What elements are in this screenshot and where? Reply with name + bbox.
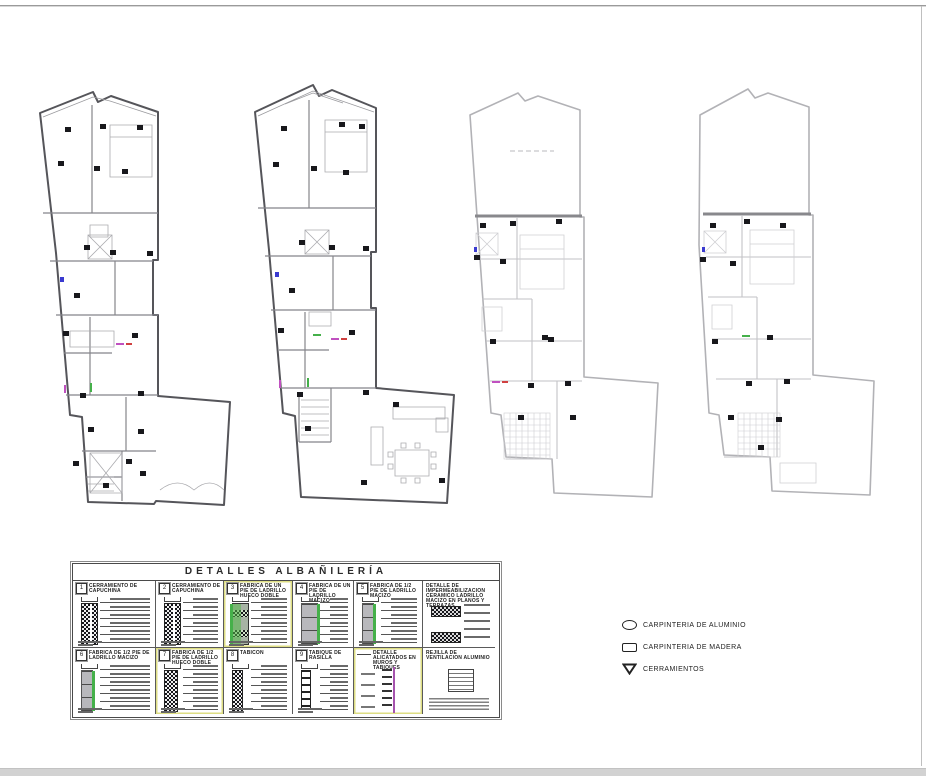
- detail-cell-8: 8 TABICON: [224, 648, 293, 714]
- sheet-right-border: [921, 6, 922, 766]
- cell-number: 8: [227, 650, 238, 661]
- legend-label: CERRAMIENTOS: [643, 666, 704, 673]
- detail-cell-5: 5 FABRICA DE 1/2 PIE DE LADRILLO MACIZO: [354, 581, 423, 648]
- green-overlay: [233, 604, 241, 644]
- wall-section-diagram: [426, 663, 493, 713]
- drawing-sheet: { "details_table": { "title": "DETALLES …: [0, 0, 926, 776]
- window-accent-magenta: [64, 343, 124, 393]
- cell-number: 4: [296, 583, 307, 594]
- window-accent-blue: [60, 277, 64, 282]
- cell-number: 6: [76, 650, 87, 661]
- wall-section-diagram: [159, 663, 221, 713]
- wall-section-diagram: [227, 596, 290, 646]
- annotation-text: [330, 598, 348, 642]
- tile-ticks: [382, 669, 392, 711]
- floor-plan-2: [243, 82, 458, 512]
- legend-item-madera: CARPINTERIA DE MADERA: [622, 636, 752, 658]
- ellipse-icon: [622, 620, 637, 630]
- legend-item-cerramientos: CERRAMIENTOS: [622, 658, 752, 680]
- spec-note: [229, 641, 253, 643]
- wall-section-diagram: [357, 596, 420, 646]
- floor-plan-1: [30, 85, 235, 510]
- interior-walls: [478, 217, 582, 459]
- plan-outline: [470, 93, 658, 497]
- annotation-text: [193, 665, 218, 709]
- window-accent-green: [742, 335, 750, 337]
- annotation-text: [110, 598, 150, 642]
- stairs-grid: [738, 413, 780, 457]
- interior-walls: [258, 100, 376, 442]
- ventilation-grille-icon: [448, 669, 474, 692]
- furniture: [476, 233, 564, 331]
- cell-number: 9: [296, 650, 307, 661]
- wall-bar: [232, 603, 249, 645]
- table-title: DETALLES ALBAÑILERÍA: [73, 564, 499, 581]
- legend: CARPINTERIA DE ALUMINIO CARPINTERIA DE M…: [622, 614, 752, 680]
- cell-number: 3: [227, 583, 238, 594]
- cell-number: 1: [76, 583, 87, 594]
- detail-cell-1: 1 CERRAMIENTO DE CAPUCHINA: [73, 581, 156, 648]
- horizontal-wall-bar: [431, 606, 461, 617]
- rect-icon: [622, 643, 637, 652]
- wall-section-diagram: [357, 663, 420, 713]
- note-text-block: [429, 698, 489, 711]
- plan-outline: [40, 92, 230, 505]
- window-accent-blue: [275, 272, 279, 277]
- wall-bar: [81, 603, 98, 645]
- plan-outline: [255, 85, 454, 503]
- window-accent-blue: [702, 247, 705, 252]
- detail-cell-7: 7 FABRICA DE 1/2 PIE DE LADRILLO HUECO D…: [156, 648, 224, 714]
- cell-number: 2: [159, 583, 170, 594]
- furniture: [301, 120, 448, 483]
- details-table: DETALLES ALBAÑILERÍA 1 CERRAMIENTO DE CA…: [72, 563, 500, 718]
- legend-item-aluminio: CARPINTERIA DE ALUMINIO: [622, 614, 752, 636]
- detail-cell-impermeabilizacion: DETALLE DE IMPERMEABILIZACION CERAMICO L…: [423, 581, 495, 648]
- window-accent-red: [502, 381, 508, 383]
- cell-label: CERRAMIENTO DE CAPUCHINA: [89, 583, 153, 594]
- window-accent-green: [307, 334, 321, 387]
- legend-label: CARPINTERIA DE MADERA: [643, 644, 742, 651]
- plan-outline: [699, 89, 874, 495]
- wall-section-diagram: [426, 596, 493, 646]
- annotation-text: [110, 665, 150, 709]
- window-accent-red: [126, 343, 132, 345]
- spec-note: [78, 641, 102, 643]
- wall-section-diagram: [76, 663, 153, 713]
- window-accent-magenta: [492, 381, 500, 383]
- dimension-mark: [301, 664, 318, 669]
- tile-line: [393, 667, 395, 713]
- window-accent-red: [341, 338, 347, 340]
- wall-bar: [301, 603, 318, 645]
- detail-cell-6: 6 FABRICA DE 1/2 PIE DE LADRILLO MACIZO: [73, 648, 156, 714]
- roof-inner-line: [43, 97, 156, 117]
- floor-plan-4: [672, 85, 884, 510]
- detail-cell-alicatados: DETALLE ALICATADOS EN MUROS Y TABIQUES: [354, 648, 423, 714]
- cell-label: FABRICA DE 1/2 PIE DE LADRILLO MACIZO: [89, 650, 153, 661]
- dimension-mark: [232, 597, 249, 602]
- horizontal-wall-bar: [431, 632, 461, 643]
- window-accent-green: [90, 383, 92, 392]
- cell-label: REJILLA DE VENTILACION ALUMINIO: [426, 650, 493, 661]
- annotation-text: [330, 665, 348, 709]
- wall-bar: [164, 670, 178, 712]
- cell-number: 7: [159, 650, 170, 661]
- annotation-text: [464, 604, 490, 644]
- details-grid: 1 CERRAMIENTO DE CAPUCHINA 2 CERRAMIENTO…: [73, 581, 499, 714]
- floor-plan-3: [462, 85, 662, 510]
- cell-label: TABIQUE DE RASILLA: [309, 650, 351, 661]
- annotation-text: [261, 665, 287, 709]
- spec-note: [298, 641, 322, 643]
- detail-cell-9: 9 TABIQUE DE RASILLA: [293, 648, 354, 714]
- annotation-text: [193, 598, 218, 642]
- dimension-mark: [164, 664, 181, 669]
- line-icon: [357, 654, 371, 655]
- detail-cell-4: 4 FABRICA DE UN PIE DE LADRILLO MACIZO: [293, 581, 354, 648]
- interior-walls: [706, 215, 811, 457]
- cell-label: TABICON: [240, 650, 264, 656]
- cell-label: CERRAMIENTO DE CAPUCHINA: [172, 583, 221, 594]
- annotation-text: [361, 673, 375, 709]
- detail-markers: [58, 124, 153, 488]
- sheet-top-border: [0, 5, 926, 7]
- cell-number: 5: [357, 583, 368, 594]
- wall-section-diagram: [296, 596, 351, 646]
- stairs-grid: [504, 413, 550, 459]
- spec-note: [161, 641, 185, 643]
- sheet-bottom-band: [0, 768, 926, 776]
- wall-section-diagram: [296, 663, 351, 713]
- dimension-mark: [81, 664, 98, 669]
- wall-bar: [81, 670, 93, 712]
- detail-cell-2: 2 CERRAMIENTO DE CAPUCHINA: [156, 581, 224, 648]
- dimension-mark: [164, 597, 181, 602]
- wall-section-diagram: [227, 663, 290, 713]
- detail-cell-rejilla: REJILLA DE VENTILACION ALUMINIO: [423, 648, 495, 714]
- spec-note: [298, 708, 322, 710]
- spec-note: [161, 708, 185, 710]
- annotation-text: [261, 598, 287, 642]
- spec-note: [229, 708, 253, 710]
- wall-bar: [164, 603, 181, 645]
- wall-bar: [362, 603, 374, 645]
- dimension-mark: [232, 664, 249, 669]
- furniture: [70, 125, 224, 493]
- spec-note: [359, 641, 383, 643]
- triangle-icon: [622, 663, 637, 675]
- detail-cell-3: 3 FABRICA DE UN PIE DE LADRILLO HUECO DO…: [224, 581, 293, 648]
- dimension-mark: [362, 597, 379, 602]
- wall-section-diagram: [159, 596, 221, 646]
- legend-label: CARPINTERIA DE ALUMINIO: [643, 622, 746, 629]
- window-accent-blue: [474, 247, 477, 252]
- wall-bar: [301, 670, 311, 710]
- dimension-mark: [301, 597, 318, 602]
- annotation-text: [391, 598, 417, 642]
- wall-section-diagram: [76, 596, 153, 646]
- wall-bar: [232, 670, 243, 712]
- spec-note: [78, 708, 102, 710]
- dimension-mark: [81, 597, 98, 602]
